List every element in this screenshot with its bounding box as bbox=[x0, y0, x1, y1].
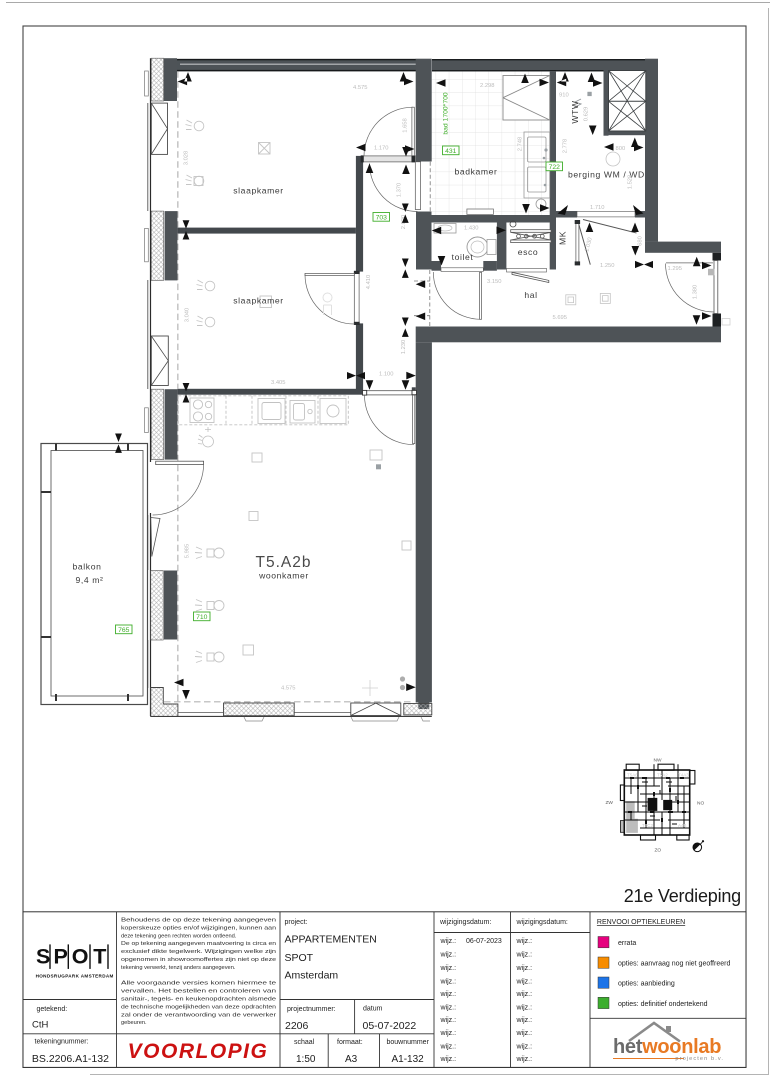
svg-text:A1-132: A1-132 bbox=[392, 1054, 425, 1065]
svg-text:opgenomen in showroomoffertes: opgenomen in showroomoffertes zijn niet … bbox=[121, 957, 276, 963]
svg-text:bouwnummer: bouwnummer bbox=[387, 1039, 430, 1046]
svg-text:ZW: ZW bbox=[606, 800, 614, 806]
svg-text:680: 680 bbox=[638, 236, 644, 246]
svg-text:1.528: 1.528 bbox=[628, 175, 634, 190]
svg-text:tekeningnummer:: tekeningnummer: bbox=[35, 1039, 89, 1046]
svg-text:06-07-2023: 06-07-2023 bbox=[466, 938, 502, 945]
svg-text:wijz.:: wijz.: bbox=[516, 1017, 533, 1024]
svg-text:1.100: 1.100 bbox=[379, 372, 394, 378]
svg-text:2206: 2206 bbox=[285, 1020, 309, 1032]
svg-text:5.695: 5.695 bbox=[553, 315, 568, 321]
svg-text:wijz.:: wijz.: bbox=[516, 1005, 533, 1012]
svg-text:wijz.:: wijz.: bbox=[516, 1030, 533, 1037]
svg-text:wijz.:: wijz.: bbox=[440, 1056, 457, 1063]
svg-text:wijz.:: wijz.: bbox=[516, 938, 533, 945]
svg-text:21e Verdieping: 21e Verdieping bbox=[624, 886, 741, 906]
svg-text:710: 710 bbox=[196, 614, 208, 621]
svg-text:projecten b.v.: projecten b.v. bbox=[675, 1056, 724, 1062]
svg-text:wijz.:: wijz.: bbox=[516, 965, 533, 972]
svg-text:ZO: ZO bbox=[655, 848, 662, 854]
svg-text:gebeuren.: gebeuren. bbox=[121, 1020, 147, 1026]
svg-text:opties: definitief ondertekend: opties: definitief ondertekend bbox=[618, 1001, 708, 1008]
svg-text:S: S bbox=[36, 945, 50, 969]
svg-text:wijz.:: wijz.: bbox=[440, 979, 457, 986]
svg-text:wijz.:: wijz.: bbox=[440, 1030, 457, 1037]
svg-text:datum: datum bbox=[363, 1006, 383, 1013]
svg-text:de technische mogelijkheden va: de technische mogelijkheden van deze opd… bbox=[121, 1004, 276, 1010]
svg-text:toilet: toilet bbox=[452, 252, 474, 262]
svg-text:1.370: 1.370 bbox=[397, 183, 403, 198]
svg-text:4.410: 4.410 bbox=[366, 275, 372, 290]
svg-text:Amsterdam: Amsterdam bbox=[285, 970, 339, 982]
svg-text:3.040: 3.040 bbox=[185, 308, 191, 323]
svg-text:wijz.:: wijz.: bbox=[440, 1017, 457, 1024]
svg-text:1.250: 1.250 bbox=[600, 263, 615, 269]
svg-text:3.405: 3.405 bbox=[271, 380, 286, 386]
svg-text:T4A3: T4A3 bbox=[678, 773, 689, 778]
svg-text:9,4 m²: 9,4 m² bbox=[76, 575, 104, 585]
svg-text:1.295: 1.295 bbox=[668, 266, 683, 272]
svg-text:wijz.:: wijz.: bbox=[440, 952, 457, 959]
svg-text:5.985: 5.985 bbox=[185, 544, 191, 559]
svg-text:4.575: 4.575 bbox=[353, 85, 368, 91]
svg-text:1.710: 1.710 bbox=[590, 205, 605, 211]
svg-text:opties: aanvraag nog niet geof: opties: aanvraag nog niet geoffreerd bbox=[618, 961, 730, 968]
svg-text:2.778: 2.778 bbox=[563, 139, 569, 154]
svg-text:slaapkamer: slaapkamer bbox=[233, 296, 283, 306]
svg-text:wijzigingsdatum:: wijzigingsdatum: bbox=[439, 919, 491, 926]
svg-text:2.298: 2.298 bbox=[480, 83, 495, 89]
svg-text:formaat:: formaat: bbox=[337, 1039, 363, 1046]
svg-text:wijz.:: wijz.: bbox=[516, 1044, 533, 1051]
svg-text:getekend:: getekend: bbox=[37, 1006, 68, 1013]
svg-text:703: 703 bbox=[376, 215, 388, 222]
svg-text:4.575: 4.575 bbox=[281, 686, 296, 692]
svg-text:SPOT: SPOT bbox=[285, 952, 314, 964]
svg-text:wijz.:: wijz.: bbox=[440, 1005, 457, 1012]
svg-text:Alle voorgaande versies komen: Alle voorgaande versies komen hiermee te bbox=[121, 981, 276, 987]
svg-text:1.230: 1.230 bbox=[401, 340, 407, 355]
svg-text:0.629: 0.629 bbox=[584, 107, 590, 122]
svg-text:wijz.:: wijz.: bbox=[440, 1044, 457, 1051]
svg-text:A4B: A4B bbox=[678, 823, 687, 828]
svg-text:koperskeuze opties en/of wijzi: koperskeuze opties en/of wijzigingen, ku… bbox=[121, 925, 276, 931]
svg-text:T5A2: T5A2 bbox=[657, 773, 668, 778]
svg-text:project:: project: bbox=[285, 919, 308, 926]
svg-text:1.430: 1.430 bbox=[464, 226, 479, 232]
svg-text:wijz.:: wijz.: bbox=[516, 991, 533, 998]
svg-text:P: P bbox=[54, 945, 68, 969]
svg-text:3.028: 3.028 bbox=[184, 151, 190, 166]
svg-text:APPARTEMENTEN: APPARTEMENTEN bbox=[285, 934, 377, 946]
svg-text:722: 722 bbox=[549, 164, 561, 171]
svg-text:T5A6: T5A6 bbox=[627, 773, 638, 778]
svg-text:NW: NW bbox=[654, 758, 662, 764]
svg-text:schaal: schaal bbox=[294, 1039, 315, 1046]
svg-text:De op tekening aangegeven maat: De op tekening aangegeven maatvoering is… bbox=[121, 941, 276, 947]
svg-text:05-07-2022: 05-07-2022 bbox=[363, 1020, 417, 1032]
svg-text:A3: A3 bbox=[345, 1054, 358, 1065]
svg-text:2.748: 2.748 bbox=[518, 137, 524, 152]
svg-text:765: 765 bbox=[118, 627, 130, 634]
svg-text:balkon: balkon bbox=[73, 562, 102, 572]
svg-text:1.380: 1.380 bbox=[693, 285, 699, 300]
svg-text:projectnummer:: projectnummer: bbox=[287, 1006, 336, 1013]
svg-text:T5C2: T5C2 bbox=[642, 823, 654, 828]
svg-text:3.150: 3.150 bbox=[487, 279, 502, 285]
svg-text:hal: hal bbox=[524, 290, 537, 300]
svg-text:vervallen. Het bestellen en co: vervallen. Het bestellen en controleren … bbox=[121, 989, 276, 995]
svg-text:1.658: 1.658 bbox=[403, 118, 409, 133]
svg-text:RENVOOI OPTIEKLEUREN: RENVOOI OPTIEKLEUREN bbox=[597, 919, 685, 926]
svg-text:errata: errata bbox=[618, 940, 636, 947]
svg-text:opties: aanbieding: opties: aanbieding bbox=[618, 981, 675, 988]
svg-text:badkamer: badkamer bbox=[454, 167, 497, 177]
svg-text:910: 910 bbox=[559, 93, 569, 99]
svg-text:T: T bbox=[93, 945, 106, 969]
svg-text:tekening verwerkt, tenzij ande: tekening verwerkt, tenzij anders aangege… bbox=[121, 965, 236, 971]
svg-text:HONDSRUGPARK AMSTERDAM: HONDSRUGPARK AMSTERDAM bbox=[36, 974, 114, 979]
svg-text:wijz.:: wijz.: bbox=[516, 952, 533, 959]
svg-text:T5.A2b: T5.A2b bbox=[256, 554, 312, 571]
svg-text:BS.2206.A1-132: BS.2206.A1-132 bbox=[32, 1053, 109, 1065]
svg-text:wijz.:: wijz.: bbox=[440, 965, 457, 972]
svg-text:Behoudens de op deze tekening: Behoudens de op deze tekening aangegeven bbox=[121, 918, 276, 924]
svg-text:wijz.:: wijz.: bbox=[440, 991, 457, 998]
svg-text:MK: MK bbox=[558, 231, 568, 245]
svg-text:woonkamer: woonkamer bbox=[258, 571, 309, 581]
svg-text:hetwoonlab: hetwoonlab bbox=[613, 1036, 721, 1058]
svg-text:zal onder de verantwoording va: zal onder de verantwoording van de verwe… bbox=[121, 1012, 276, 1018]
svg-text:O: O bbox=[72, 945, 89, 969]
svg-text:WTW: WTW bbox=[570, 100, 580, 124]
svg-text:sanitair-, tegels- en keukenop: sanitair-, tegels- en keukenopdrachten a… bbox=[121, 997, 276, 1003]
svg-text:esco: esco bbox=[518, 247, 539, 257]
svg-text:NO: NO bbox=[697, 801, 704, 807]
svg-text:wijz.:: wijz.: bbox=[516, 979, 533, 986]
svg-text:1:50: 1:50 bbox=[296, 1054, 316, 1065]
svg-text:bad 1700*700: bad 1700*700 bbox=[443, 92, 450, 135]
svg-text:slaapkamer: slaapkamer bbox=[233, 186, 283, 196]
svg-text:wijz.:: wijz.: bbox=[516, 1056, 533, 1063]
svg-text:wijz.:: wijz.: bbox=[440, 938, 457, 945]
svg-text:deze tekening geen rechten wor: deze tekening geen rechten worden ontlee… bbox=[121, 933, 237, 939]
svg-text:exclusief dikte tegelwerk. Wij: exclusief dikte tegelwerk. Wijzigingen w… bbox=[121, 949, 276, 955]
svg-text:1.170: 1.170 bbox=[374, 146, 389, 152]
svg-text:wijzigingsdatum:: wijzigingsdatum: bbox=[516, 919, 568, 926]
svg-text:800: 800 bbox=[616, 146, 626, 152]
svg-text:431: 431 bbox=[445, 148, 457, 155]
svg-text:CtH: CtH bbox=[32, 1020, 49, 1031]
svg-text:VOORLOPIG: VOORLOPIG bbox=[128, 1040, 269, 1063]
